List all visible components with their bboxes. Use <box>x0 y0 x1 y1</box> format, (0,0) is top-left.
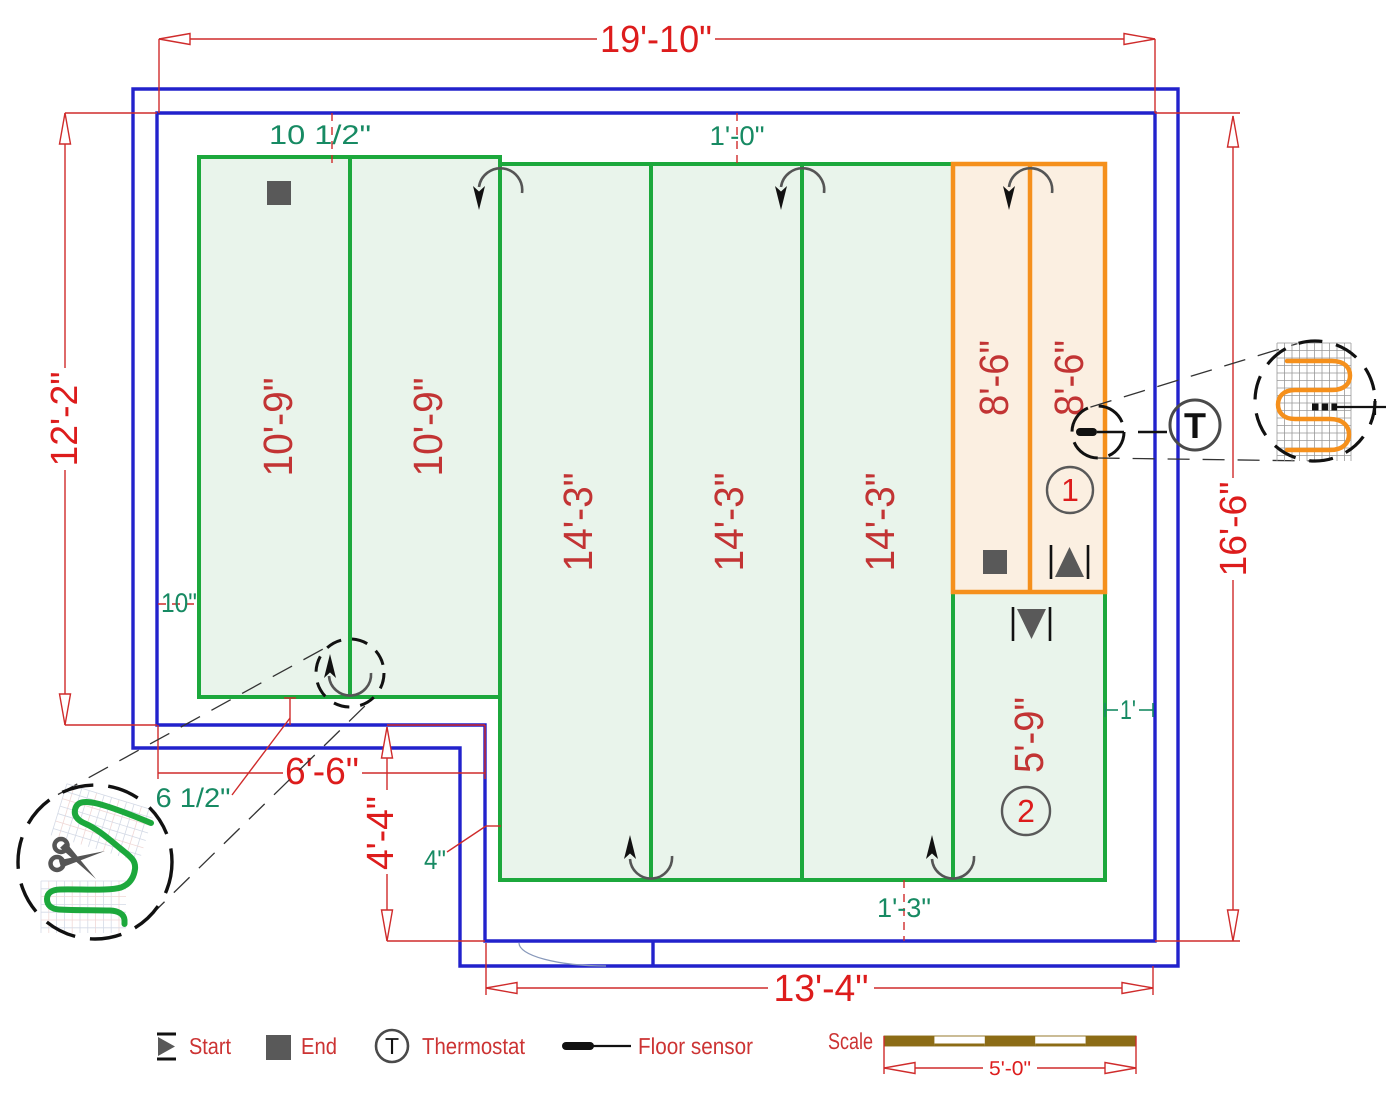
svg-text:1'-3": 1'-3" <box>877 893 931 923</box>
svg-text:6'-6": 6'-6" <box>285 751 359 793</box>
svg-text:1: 1 <box>1061 472 1079 508</box>
svg-text:Thermostat: Thermostat <box>422 1033 526 1059</box>
svg-text:6 1/2": 6 1/2" <box>156 783 231 813</box>
svg-text:16'-6": 16'-6" <box>1213 482 1255 577</box>
svg-text:End: End <box>301 1033 337 1059</box>
svg-text:14'-3": 14'-3" <box>555 473 601 572</box>
svg-text:1'-0": 1'-0" <box>710 121 765 151</box>
svg-text:T: T <box>1184 405 1206 446</box>
svg-text:14'-3": 14'-3" <box>857 473 903 572</box>
svg-text:5'-9": 5'-9" <box>1006 697 1052 773</box>
svg-text:4": 4" <box>424 845 446 875</box>
svg-text:10 1/2": 10 1/2" <box>269 120 371 150</box>
svg-text:Start: Start <box>189 1033 232 1059</box>
svg-text:Floor sensor: Floor sensor <box>638 1033 753 1059</box>
svg-text:19'-10": 19'-10" <box>600 19 712 61</box>
svg-text:14'-3": 14'-3" <box>706 473 752 572</box>
svg-text:8'-6": 8'-6" <box>971 340 1017 416</box>
svg-text:4'-4": 4'-4" <box>360 796 402 870</box>
svg-text:Scale: Scale <box>828 1028 873 1054</box>
svg-text:10'-9": 10'-9" <box>255 378 301 477</box>
svg-text:8'-6": 8'-6" <box>1046 340 1092 416</box>
svg-text:10": 10" <box>161 588 197 618</box>
svg-text:12'-2": 12'-2" <box>44 372 86 467</box>
svg-text:2: 2 <box>1017 793 1035 829</box>
svg-text:10'-9": 10'-9" <box>405 378 451 477</box>
svg-text:13'-4": 13'-4" <box>774 968 869 1010</box>
svg-text:T: T <box>385 1033 399 1059</box>
svg-text:5'-0": 5'-0" <box>989 1058 1031 1080</box>
svg-text:1': 1' <box>1120 695 1136 725</box>
